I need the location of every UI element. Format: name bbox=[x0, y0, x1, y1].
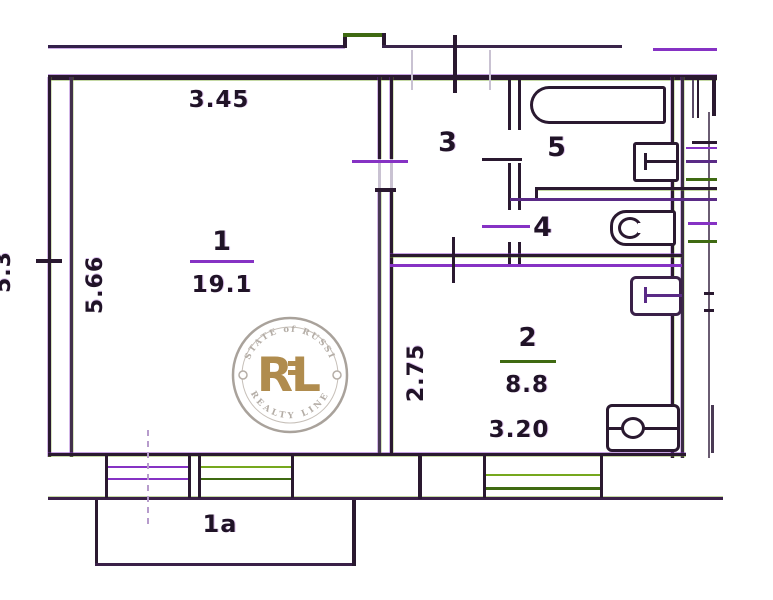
wall-top-outer-right bbox=[653, 48, 717, 51]
entrance-tick-main bbox=[453, 35, 457, 93]
door-kitchen-tick bbox=[452, 237, 455, 283]
wall-living-kitchen-a bbox=[378, 192, 381, 453]
window-2-line-1 bbox=[201, 466, 293, 468]
wall-stub-v2 bbox=[697, 80, 699, 118]
balcony-wall-right bbox=[352, 500, 356, 566]
wall-stub-dash1 bbox=[704, 292, 714, 295]
dim-kitchen-height: 2.75 bbox=[406, 333, 428, 413]
room-balcony-number: 1а bbox=[190, 512, 250, 536]
left-wall-tick bbox=[36, 259, 62, 263]
kitchen-window-line-1 bbox=[486, 474, 600, 476]
wall-hall-bath-a1 bbox=[508, 77, 511, 130]
wall-notch-top bbox=[343, 33, 386, 37]
wall-kitchen-top-b bbox=[390, 264, 682, 267]
wall-stub-v1 bbox=[692, 80, 694, 118]
watermark-logo-bar-1 bbox=[288, 361, 299, 366]
watermark-logo-bar-2 bbox=[288, 370, 299, 375]
kitchen-window-line-2 bbox=[486, 487, 600, 490]
wall-hall-bath-b2 bbox=[518, 163, 521, 210]
wall-bath-wc-bottom bbox=[510, 198, 717, 201]
wall-living-hall-a bbox=[378, 77, 381, 159]
window-1-line-1 bbox=[108, 466, 190, 468]
kitchen-sink-tap bbox=[646, 294, 682, 297]
wall-bottom-upper bbox=[48, 453, 686, 456]
wall-living-hall-b bbox=[390, 77, 393, 159]
wall-stub-h2 bbox=[686, 147, 717, 149]
door-bath-line bbox=[482, 158, 522, 161]
wall-bath-wc-top bbox=[535, 187, 717, 190]
room-living-area: 19.1 bbox=[182, 274, 262, 297]
wall-top-outer-left bbox=[48, 45, 345, 48]
watermark-stamp: ESTATE of RUSSIA REALTY LINE R L bbox=[228, 313, 352, 437]
wall-living-kitchen-b bbox=[390, 192, 393, 453]
dim-living-width: 3.45 bbox=[179, 89, 259, 112]
wall-left-outer bbox=[48, 77, 51, 457]
wall-hall-bath-a2 bbox=[508, 163, 511, 210]
bath-sink-handle bbox=[644, 153, 647, 170]
window-mullion-1 bbox=[188, 455, 191, 498]
window-2-line-2 bbox=[201, 478, 293, 480]
bath-sink-tap bbox=[646, 160, 679, 163]
watermark-dot-left bbox=[239, 371, 247, 379]
toilet-bowl-gap bbox=[638, 223, 644, 233]
window-post-3 bbox=[418, 455, 422, 499]
room-kitchen-underline bbox=[500, 360, 556, 363]
room-wc-number: 4 bbox=[523, 214, 563, 241]
dim-kitchen-width: 3.20 bbox=[479, 419, 559, 442]
stove-burner-icon bbox=[621, 417, 645, 439]
window-mullion-2 bbox=[198, 455, 201, 498]
room-living-underline bbox=[190, 260, 254, 263]
floor-plan: 3.45 5.66 5.3 1 19.1 3 5 4 2 8.8 2.75 3.… bbox=[0, 0, 773, 600]
window-post-2 bbox=[291, 455, 294, 498]
boundary-right-thin bbox=[708, 112, 710, 458]
balcony-wall-bottom bbox=[95, 563, 355, 566]
watermark-dot-right bbox=[333, 371, 341, 379]
window-post-1 bbox=[105, 455, 108, 498]
wall-left-inner bbox=[70, 77, 73, 457]
balcony-wall-left bbox=[95, 500, 98, 566]
entrance-tick-right bbox=[489, 50, 491, 90]
wall-bottom-lower bbox=[48, 497, 723, 500]
wall-hall-bath-b1 bbox=[518, 77, 521, 130]
wall-right-outer bbox=[671, 77, 674, 458]
dim-living-height: 5.66 bbox=[85, 245, 107, 325]
room-bath-number: 5 bbox=[537, 134, 577, 161]
wall-kitchen-top-a bbox=[390, 254, 682, 257]
watermark-initial-l: L bbox=[291, 348, 321, 403]
wall-stub-h6 bbox=[688, 240, 717, 243]
wall-top-main bbox=[48, 75, 717, 80]
room-hall-number: 3 bbox=[428, 129, 468, 156]
entrance-tick-left bbox=[411, 50, 413, 90]
wall-stub-dash2 bbox=[704, 309, 714, 312]
room-kitchen-number: 2 bbox=[498, 325, 558, 351]
kitchen-window-post-1 bbox=[483, 455, 486, 498]
door-living-line bbox=[352, 160, 408, 163]
kitchen-window-post-2 bbox=[600, 455, 603, 498]
dim-edge: 5.3 bbox=[0, 242, 15, 302]
room-kitchen-area: 8.8 bbox=[487, 374, 567, 397]
window-1-line-2 bbox=[108, 478, 190, 480]
wall-stub-h4 bbox=[686, 178, 717, 181]
room-living-number: 1 bbox=[192, 228, 252, 255]
watermark-initial-r: R bbox=[257, 348, 293, 403]
wall-top-outer-mid bbox=[382, 45, 622, 48]
wall-stub-h5 bbox=[688, 222, 717, 225]
wall-stub-h1 bbox=[692, 141, 717, 144]
wall-top-right-corner bbox=[712, 78, 716, 116]
bathtub-icon bbox=[530, 86, 666, 124]
kitchen-sink-handle bbox=[644, 287, 647, 303]
balcony-door-tick bbox=[147, 430, 149, 525]
wall-stub-dash3 bbox=[711, 405, 714, 453]
wall-right-inner bbox=[681, 77, 684, 458]
wall-stub-h3 bbox=[686, 160, 717, 163]
